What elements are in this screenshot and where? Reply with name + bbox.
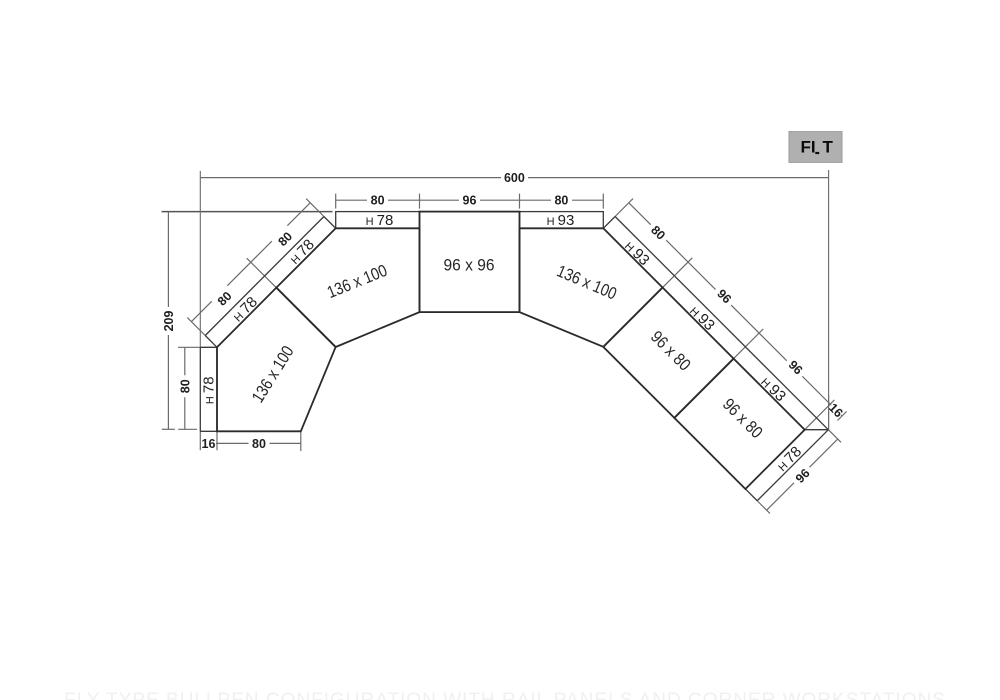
svg-text:96: 96 xyxy=(463,194,477,208)
svg-text:80: 80 xyxy=(371,194,385,208)
svg-text:FLY TYPE BULLPEN CONFIGURATION: FLY TYPE BULLPEN CONFIGURATION WITH RAIL… xyxy=(64,690,946,700)
svg-text:96 x 96: 96 x 96 xyxy=(444,256,495,275)
svg-text:80: 80 xyxy=(554,194,568,208)
svg-text:80: 80 xyxy=(178,379,192,393)
svg-text:209: 209 xyxy=(162,311,176,332)
svg-text:600: 600 xyxy=(504,171,525,185)
svg-text:16: 16 xyxy=(202,437,216,451)
svg-text:80: 80 xyxy=(252,437,266,451)
svg-text:FI: FI xyxy=(801,137,816,156)
svg-text:T: T xyxy=(823,137,834,156)
